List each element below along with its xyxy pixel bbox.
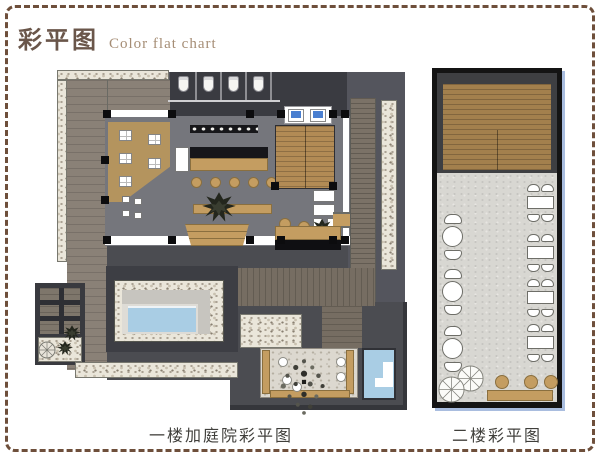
round-table	[442, 281, 463, 302]
column	[168, 110, 176, 118]
second-floor-caption: 二楼彩平图	[432, 422, 562, 446]
page-subtitle: Color flat chart	[109, 36, 217, 52]
column	[341, 110, 349, 118]
chair	[444, 326, 462, 336]
column	[329, 182, 337, 190]
pebble-border-top	[57, 70, 169, 80]
pergola-garden	[35, 283, 85, 365]
chair	[444, 269, 462, 279]
second-floor-plan	[432, 68, 562, 408]
bar-stool	[210, 177, 221, 188]
pool-water	[128, 306, 196, 332]
rect-table	[527, 246, 554, 259]
bar-stool	[229, 177, 240, 188]
column	[341, 236, 349, 244]
shelf-unit	[313, 204, 335, 216]
monitor-icon	[288, 109, 304, 122]
bar-stool	[544, 375, 558, 389]
stall-front-wall	[168, 100, 280, 102]
bar-stool	[191, 177, 202, 188]
side-seat	[134, 212, 142, 219]
table-set	[435, 269, 471, 315]
column	[246, 110, 254, 118]
bar-fridge	[175, 147, 189, 172]
column	[168, 236, 176, 244]
plant-icon	[55, 339, 75, 359]
round-table	[442, 226, 463, 247]
gravel-bed	[240, 314, 302, 348]
chair	[444, 250, 462, 260]
table-set	[435, 214, 471, 260]
column	[103, 236, 111, 244]
monitor-icon	[310, 109, 326, 122]
column	[329, 110, 337, 118]
bar-stool	[495, 375, 509, 389]
dining-table	[148, 134, 161, 145]
table-set	[525, 324, 556, 372]
wall-segment	[105, 110, 170, 117]
rect-table	[527, 196, 554, 209]
page-header: 彩平图Color flat chart	[18, 20, 217, 55]
chair	[541, 309, 554, 317]
first-floor-caption: 一楼加庭院彩平图	[32, 422, 410, 446]
pool-step	[375, 378, 393, 387]
column	[271, 182, 279, 190]
bar-counter-top	[190, 147, 268, 158]
column	[277, 110, 285, 118]
chair	[541, 234, 554, 242]
pebble-walkway	[75, 362, 238, 378]
chair	[527, 264, 540, 272]
plank-path-vertical	[322, 306, 362, 348]
chair	[527, 234, 540, 242]
chair	[527, 354, 540, 362]
presentation-board: 彩平图Color flat chart	[0, 0, 600, 457]
page-title: 彩平图	[18, 28, 99, 54]
chair	[541, 264, 554, 272]
chair	[527, 309, 540, 317]
round-table	[442, 338, 463, 359]
chair	[541, 184, 554, 192]
bar-stool	[248, 177, 259, 188]
rect-table	[527, 291, 554, 304]
wood-bench	[346, 350, 354, 394]
first-floor-plan	[32, 66, 410, 412]
bar-stool	[524, 375, 538, 389]
plate-shelf	[190, 125, 258, 133]
chair	[527, 324, 540, 332]
monitor-screen	[313, 111, 323, 118]
chair	[527, 214, 540, 222]
stone-swirl-icon	[38, 341, 56, 359]
pool-step	[122, 290, 210, 304]
table-set	[525, 184, 556, 232]
plant-icon	[198, 188, 240, 230]
column	[101, 196, 109, 204]
wood-bench	[262, 350, 270, 394]
bar-counter-front	[190, 158, 268, 171]
round-stool	[336, 372, 346, 382]
chair	[541, 279, 554, 287]
chair	[527, 184, 540, 192]
shelf-unit	[313, 190, 335, 202]
roof-deck	[443, 84, 551, 170]
umbrella-icon	[438, 376, 465, 403]
column	[277, 236, 285, 244]
column	[103, 110, 111, 118]
tree-icon	[273, 353, 335, 415]
side-seat	[134, 198, 142, 205]
toilet-icon	[228, 76, 239, 92]
side-seat	[122, 210, 130, 217]
side-seat	[122, 196, 130, 203]
chair	[541, 324, 554, 332]
rect-table	[527, 336, 554, 349]
dining-table	[119, 153, 132, 164]
chair	[541, 214, 554, 222]
bar-counter	[487, 390, 553, 401]
plunge-pool	[362, 348, 396, 400]
table-set	[525, 234, 556, 282]
column	[329, 236, 337, 244]
pebble-border-left	[57, 80, 67, 262]
pool-step	[198, 290, 210, 334]
pebble-strip	[381, 100, 397, 270]
pool-step	[383, 362, 393, 378]
dining-table	[119, 130, 132, 141]
entry-steps	[183, 224, 251, 246]
column	[101, 156, 109, 164]
toilet-icon	[178, 76, 189, 92]
staircase	[275, 125, 335, 189]
toilet-icon	[253, 76, 264, 92]
toilet-icon	[203, 76, 214, 92]
chair	[444, 305, 462, 315]
chair	[444, 214, 462, 224]
monitor-screen	[291, 111, 301, 118]
column	[246, 236, 254, 244]
chair	[527, 279, 540, 287]
table-set	[525, 279, 556, 327]
dining-table	[119, 176, 132, 187]
chair	[541, 354, 554, 362]
round-stool	[336, 357, 346, 367]
dining-table	[148, 158, 161, 169]
